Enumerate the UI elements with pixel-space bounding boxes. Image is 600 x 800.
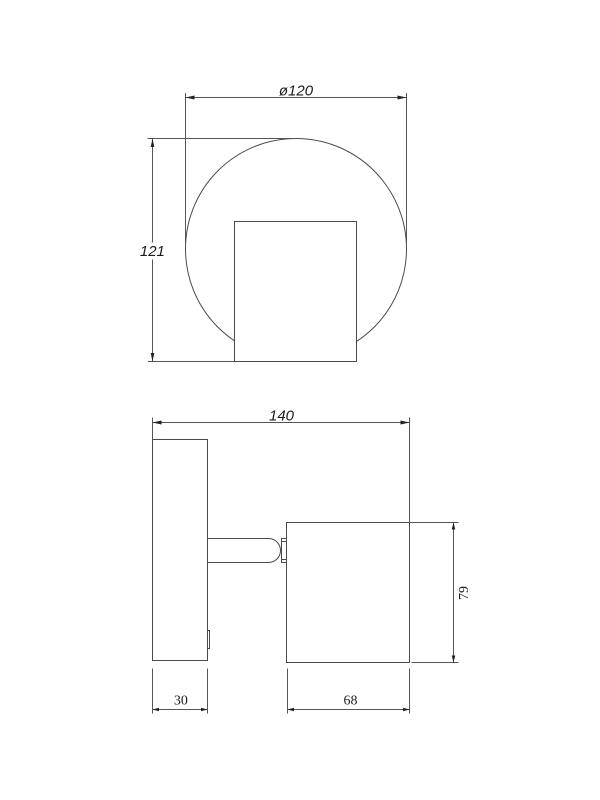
svg-text:30: 30 <box>174 694 188 709</box>
svg-text:ø120: ø120 <box>279 83 314 100</box>
svg-text:68: 68 <box>344 694 358 709</box>
svg-text:121: 121 <box>140 243 165 260</box>
svg-text:79: 79 <box>457 586 472 600</box>
svg-text:140: 140 <box>269 408 295 425</box>
